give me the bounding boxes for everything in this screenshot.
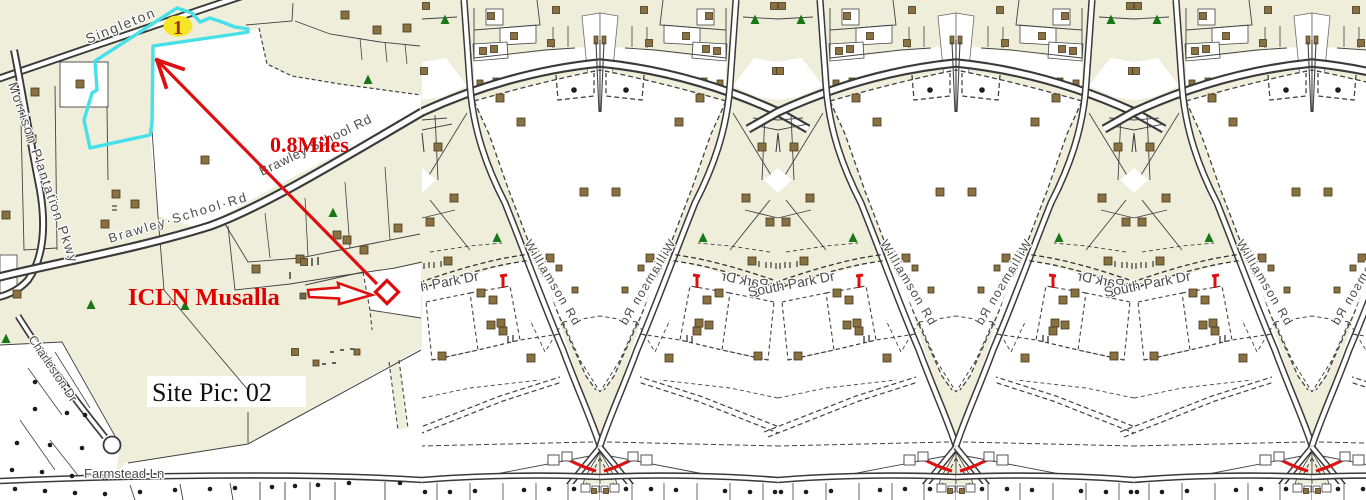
svg-text:1: 1 [173, 17, 183, 39]
svg-text:Site Pic: 02: Site Pic: 02 [152, 378, 272, 407]
svg-text:Farmstead Ln: Farmstead Ln [84, 466, 164, 481]
svg-text:0.8Miles: 0.8Miles [270, 132, 349, 157]
svg-text:ICLN Musalla: ICLN Musalla [128, 284, 280, 311]
